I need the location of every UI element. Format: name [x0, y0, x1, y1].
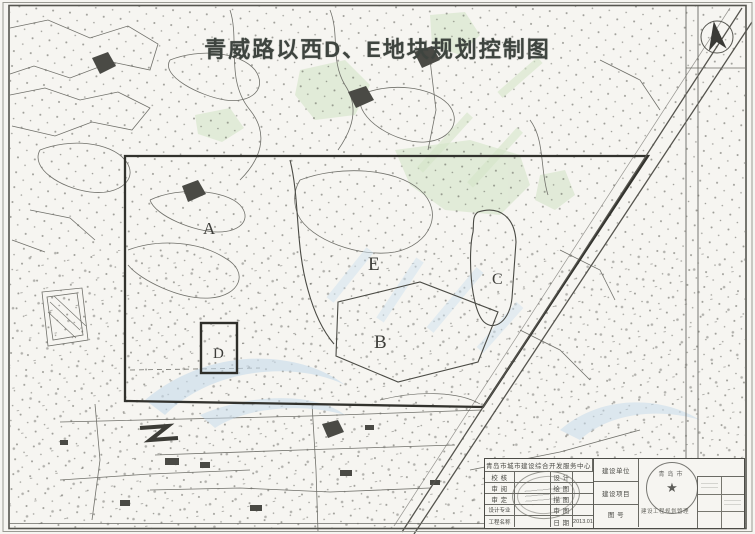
block-label-b: B — [374, 332, 387, 353]
tb-role-4: 工程名称 — [485, 516, 515, 527]
official-seal: 青岛市 ★ — [646, 462, 698, 514]
seal-star-icon: ★ — [647, 480, 697, 496]
tb-mini-grid — [697, 476, 744, 528]
tb-project-label: 建设项目 — [594, 482, 639, 505]
block-label-a: A — [203, 219, 216, 238]
tb-role-1: 审 阅 — [485, 483, 515, 494]
tb-role-0: 校 核 — [485, 472, 515, 483]
tb-sheetno-label: 图 号 — [594, 505, 639, 527]
tb-val-0 — [573, 472, 593, 483]
map-canvas: A E B C D — [0, 0, 755, 534]
drawing-sheet: A E B C D 青威路以西D、E地块规划控制图 青岛市城市建设综合开发服务中… — [0, 0, 755, 534]
org-name: 青岛市城市建设综合开发服务中心 — [485, 459, 593, 472]
block-label-e: E — [368, 254, 380, 275]
tb-role-3: 设计专业 — [485, 505, 515, 516]
seal-text: 青岛市 — [647, 469, 697, 478]
block-label-c: C — [492, 271, 503, 288]
tb-owner-label: 建设单位 — [594, 459, 639, 482]
tb-role-2: 审 定 — [485, 494, 515, 505]
block-label-d: D — [213, 346, 224, 362]
tb-val-3 — [573, 505, 593, 516]
tb-date-value: 2013.01 — [573, 516, 593, 527]
